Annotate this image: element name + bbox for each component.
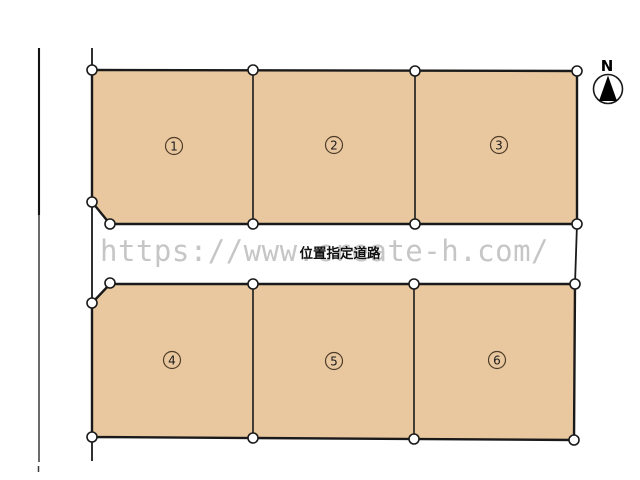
survey-point bbox=[409, 434, 419, 444]
survey-point bbox=[248, 433, 258, 443]
survey-point bbox=[409, 279, 419, 289]
plot-number: 2 bbox=[330, 139, 338, 153]
survey-point bbox=[87, 432, 97, 442]
survey-point bbox=[248, 279, 258, 289]
north-compass: N bbox=[594, 57, 623, 104]
survey-point bbox=[105, 219, 115, 229]
survey-point bbox=[572, 66, 582, 76]
survey-point bbox=[87, 298, 97, 308]
survey-point bbox=[572, 219, 582, 229]
survey-point bbox=[87, 197, 97, 207]
plot-number: 4 bbox=[168, 354, 176, 368]
survey-point bbox=[248, 219, 258, 229]
land-plot-diagram: https://www.create-h.com/ 位置指定道路 1 2 3 4… bbox=[0, 0, 640, 480]
plot-number: 1 bbox=[170, 140, 178, 154]
plot-number: 3 bbox=[495, 139, 503, 153]
survey-point bbox=[248, 65, 258, 75]
road-east-boundary bbox=[575, 224, 577, 284]
survey-point bbox=[569, 435, 579, 445]
plot-number: 6 bbox=[493, 354, 501, 368]
left-boundary-line bbox=[39, 48, 40, 472]
compass-n-label: N bbox=[601, 57, 614, 75]
survey-point bbox=[410, 219, 420, 229]
survey-point bbox=[410, 66, 420, 76]
survey-point bbox=[105, 278, 115, 288]
diagram-canvas: https://www.create-h.com/ 位置指定道路 1 2 3 4… bbox=[0, 0, 640, 480]
survey-point bbox=[570, 279, 580, 289]
survey-point bbox=[87, 65, 97, 75]
road-label: 位置指定道路 bbox=[300, 245, 381, 262]
plot-number: 5 bbox=[330, 355, 338, 369]
